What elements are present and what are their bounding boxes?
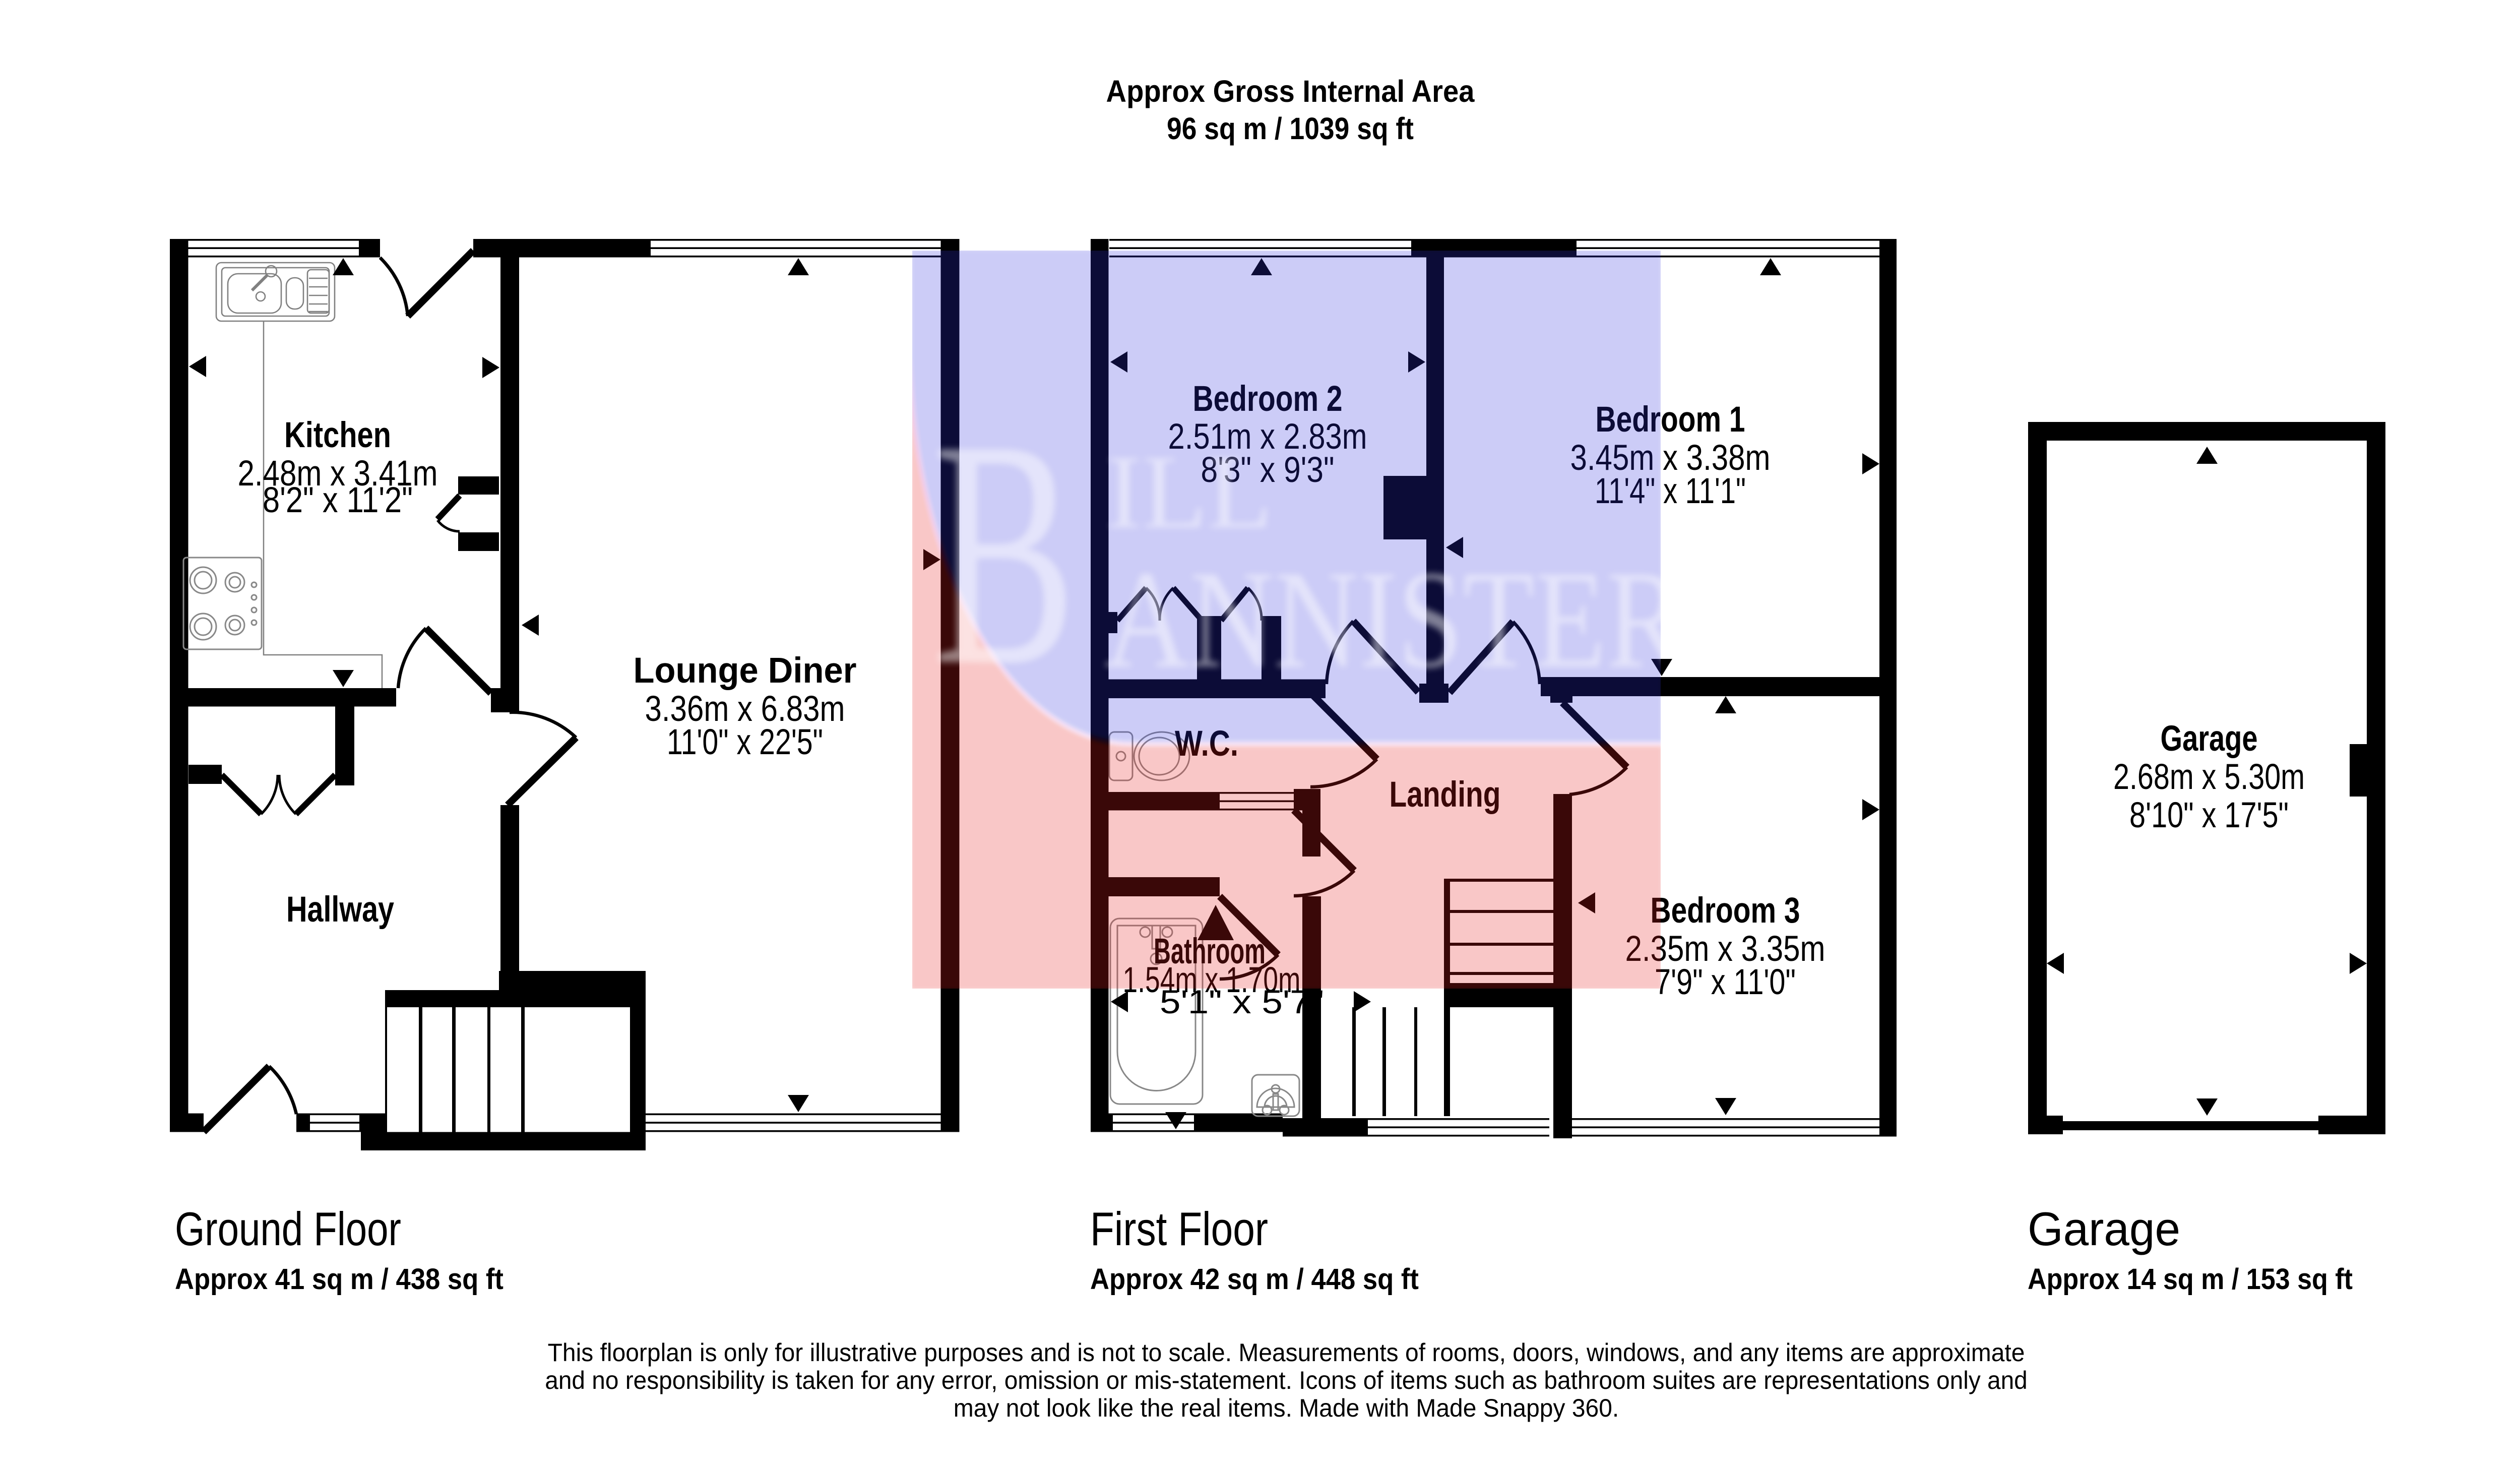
svg-text:ILL: ILL bbox=[1106, 433, 1273, 550]
svg-text:This floorplan is only for ill: This floorplan is only for illustrative … bbox=[548, 1339, 2025, 1367]
svg-text:7'9" x 11'0": 7'9" x 11'0" bbox=[1655, 961, 1796, 1002]
svg-text:Approx 41 sq m / 438 sq ft: Approx 41 sq m / 438 sq ft bbox=[175, 1263, 503, 1296]
svg-text:Garage: Garage bbox=[2160, 718, 2257, 759]
svg-text:Approx Gross Internal Area: Approx Gross Internal Area bbox=[1106, 75, 1475, 109]
svg-text:Kitchen: Kitchen bbox=[284, 414, 391, 455]
svg-text:and no responsibility is taken: and no responsibility is taken for any e… bbox=[545, 1367, 2028, 1394]
svg-text:may not look like the real ite: may not look like the real items. Made w… bbox=[954, 1394, 1619, 1422]
svg-text:Approx 42 sq m / 448 sq ft: Approx 42 sq m / 448 sq ft bbox=[1090, 1263, 1419, 1296]
svg-text:Ground Floor: Ground Floor bbox=[175, 1203, 401, 1256]
svg-text:11'0" x 22'5": 11'0" x 22'5" bbox=[667, 722, 823, 762]
svg-text:5'1" x 5'7": 5'1" x 5'7" bbox=[1160, 983, 1324, 1020]
svg-text:Lounge Diner: Lounge Diner bbox=[634, 650, 857, 690]
svg-text:ANNISTER: ANNISTER bbox=[1105, 542, 1685, 697]
svg-text:Garage: Garage bbox=[2028, 1202, 2180, 1256]
svg-text:First Floor: First Floor bbox=[1090, 1203, 1268, 1255]
svg-text:B: B bbox=[932, 373, 1076, 732]
svg-text:Hallway: Hallway bbox=[286, 889, 394, 929]
svg-text:Approx 14 sq m / 153 sq ft: Approx 14 sq m / 153 sq ft bbox=[2028, 1262, 2353, 1295]
svg-text:2.68m x 5.30m: 2.68m x 5.30m bbox=[2113, 757, 2305, 797]
svg-text:8'2" x 11'2": 8'2" x 11'2" bbox=[263, 480, 413, 520]
svg-text:Bedroom 3: Bedroom 3 bbox=[1651, 890, 1800, 930]
svg-text:8'10" x 17'5": 8'10" x 17'5" bbox=[2129, 794, 2289, 835]
svg-text:96 sq m / 1039 sq ft: 96 sq m / 1039 sq ft bbox=[1167, 112, 1414, 146]
